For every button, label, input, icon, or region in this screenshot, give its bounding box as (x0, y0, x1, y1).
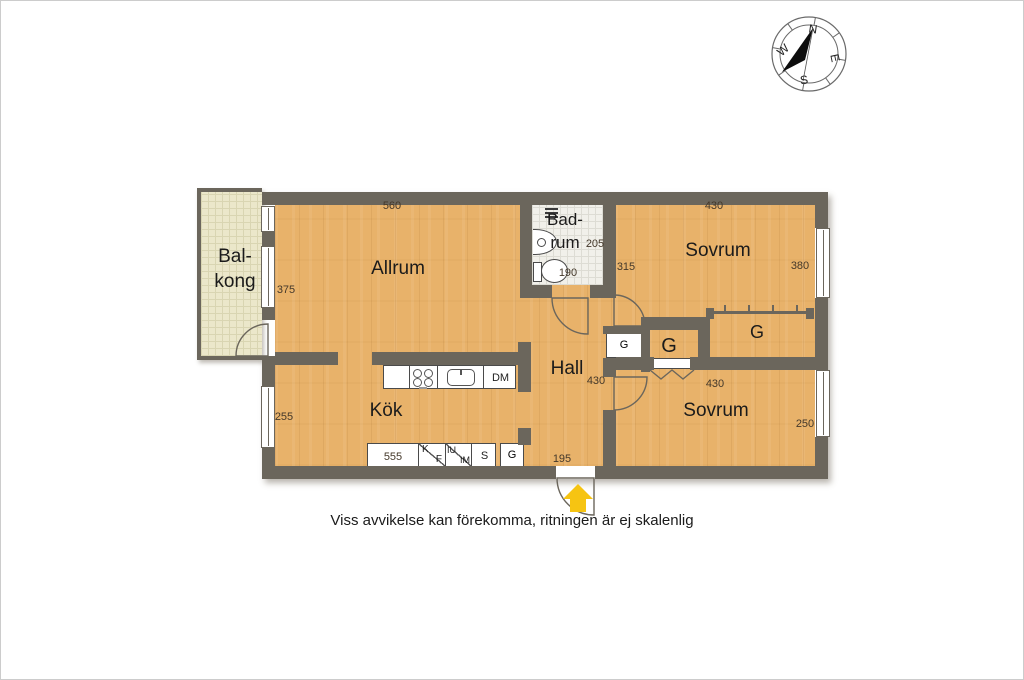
room-label-balkong: Bal- kong (197, 244, 273, 294)
door-arc-balcony (236, 324, 268, 356)
dim-sovrum-top-width: 430 (700, 200, 728, 212)
dim-allrum-depth: 375 (272, 284, 300, 296)
door-arc-sovrum-top (614, 295, 645, 326)
dim-badrum-depth: 205 (582, 238, 608, 250)
dim-sovrum-top-nook: 315 (612, 261, 640, 273)
dim-sovrum-top-depth: 380 (786, 260, 814, 272)
room-label-sovrum-bottom: Sovrum (674, 398, 758, 423)
dim-kok-depth: 255 (270, 411, 298, 423)
compass-rose-icon: N E S W (770, 15, 848, 93)
dim-sovrum-bottom-depth: 250 (791, 418, 819, 430)
door-symbols (0, 0, 1024, 680)
door-arc-sovrum-bottom (614, 377, 647, 410)
disclaimer-text: Viss avvikelse kan förekomma, ritningen … (0, 512, 1024, 529)
closet-label-middle-g: G (657, 335, 681, 358)
dim-hall-width: 430 (582, 375, 610, 387)
room-label-sovrum-top: Sovrum (676, 238, 760, 263)
floor-plan: DM 555 K F IU IM S G G (0, 0, 1024, 680)
dim-entrance-width: 195 (548, 453, 576, 465)
door-arc-bathroom (552, 298, 588, 334)
closet-label-sovrum-g: G (745, 322, 769, 343)
dim-sovrum-bottom-width: 430 (701, 378, 729, 390)
room-label-kok: Kök (346, 398, 426, 423)
room-label-allrum: Allrum (356, 256, 440, 281)
dim-badrum-width: 190 (554, 267, 582, 279)
entrance-arrow-stem (570, 499, 586, 512)
folding-door-zigzag (650, 370, 694, 379)
dim-allrum-width: 560 (378, 200, 406, 212)
entrance-arrow-icon (563, 484, 593, 499)
